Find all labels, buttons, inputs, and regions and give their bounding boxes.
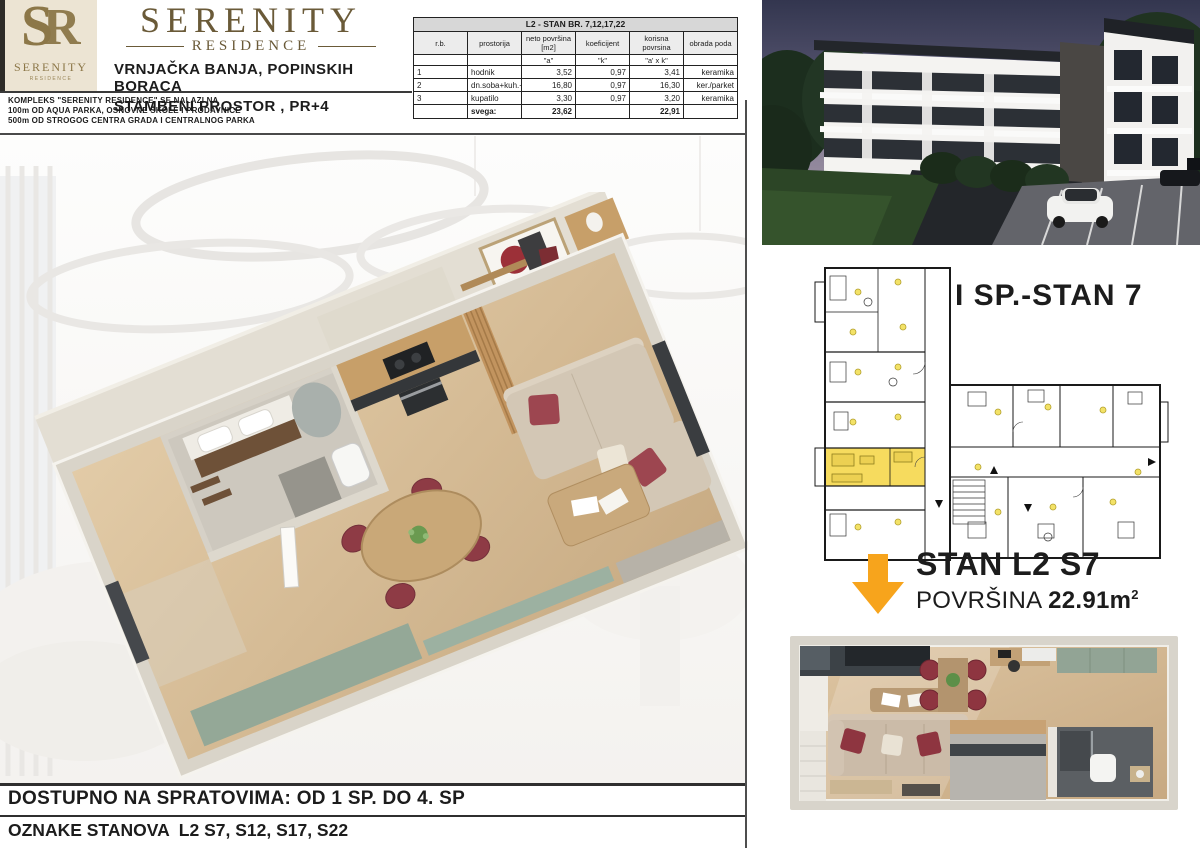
info-divider [0, 133, 746, 135]
table-row: 1 hodnik 3,52 0,97 3,41 keramika [414, 66, 738, 79]
floor-label: I SP.-STAN 7 [955, 279, 1143, 313]
col-prostorija: prostorija [468, 32, 522, 55]
info-line-1: KOMPLEKS "SERENITY RESIDENCE" SE NALAZI … [8, 96, 410, 106]
page-title: SERENITY [100, 0, 402, 40]
building-photo [762, 0, 1200, 245]
area-table-subheader-row: "a" "k" "a' x k" [414, 55, 738, 66]
subtitle-rule-right [318, 46, 376, 48]
col-obrada: obrada poda [684, 32, 738, 55]
table-row: 3 kupatilo 3,30 0,97 3,20 keramika [414, 92, 738, 105]
apartment-top-view-render [790, 636, 1178, 810]
staircase [953, 480, 985, 524]
unit-area: POVRŠINA 22.91m2 [916, 587, 1139, 615]
down-arrow-icon [852, 554, 904, 619]
subtitle-rule-left [126, 46, 184, 48]
footer-divider-mid [0, 815, 747, 817]
unit-name: STAN L2 S7 [916, 546, 1100, 583]
col-neto: neto površina [m2] [522, 32, 576, 55]
footer-divider-top [0, 783, 747, 786]
area-table: L2 - STAN BR. 7,12,17,22 r.b. prostorija… [413, 17, 738, 119]
header-divider [0, 91, 412, 93]
table-total-row: svega: 23,62 22,91 [414, 105, 738, 119]
col-korisna: korisna povrsina [630, 32, 684, 55]
area-table-title: L2 - STAN BR. 7,12,17,22 [414, 18, 738, 32]
unit-codes-line: OZNAKE STANOVA L2 S7, S12, S17, S22 [8, 820, 348, 841]
info-line-2: 100m OD AQUA PARKA, OSNOVNE ŠKOLE I PROD… [8, 106, 410, 116]
sr-monogram-icon: S R [5, 0, 97, 60]
apartment-3d-render [18, 192, 748, 792]
flyer-page: S R SERENITY RESIDENCE SERENITY RESIDENC… [0, 0, 1200, 848]
page-subtitle: RESIDENCE [100, 38, 402, 55]
logo-subtitle: RESIDENCE [5, 76, 97, 82]
subtitle-text: RESIDENCE [192, 38, 311, 55]
info-line-3: 500m OD STROGOG CENTRA GRADA I CENTRALNO… [8, 116, 410, 126]
area-table-header-row: r.b. prostorija neto površina [m2] koefi… [414, 32, 738, 55]
table-row: 2 dn.soba+kuh.+trp. 16,80 0,97 16,30 ker… [414, 79, 738, 92]
location-info: KOMPLEKS "SERENITY RESIDENCE" SE NALAZI … [8, 96, 410, 126]
serenity-logo: S R SERENITY RESIDENCE [5, 0, 97, 93]
unit-area-label: POVRŠINA [916, 587, 1041, 614]
col-rb: r.b. [414, 32, 468, 55]
address-line-1: VRNJAČKA BANJA, POPINSKIH BORACA [114, 61, 402, 95]
col-koeficijent: koeficijent [576, 32, 630, 55]
vertical-divider [745, 100, 747, 848]
monogram-letter-r: R [43, 0, 81, 57]
unit-area-value: 22.91m [1048, 587, 1131, 614]
availability-line: DOSTUPNO NA SPRATOVIMA: OD 1 SP. DO 4. S… [8, 788, 465, 810]
logo-name: SERENITY [5, 60, 97, 75]
